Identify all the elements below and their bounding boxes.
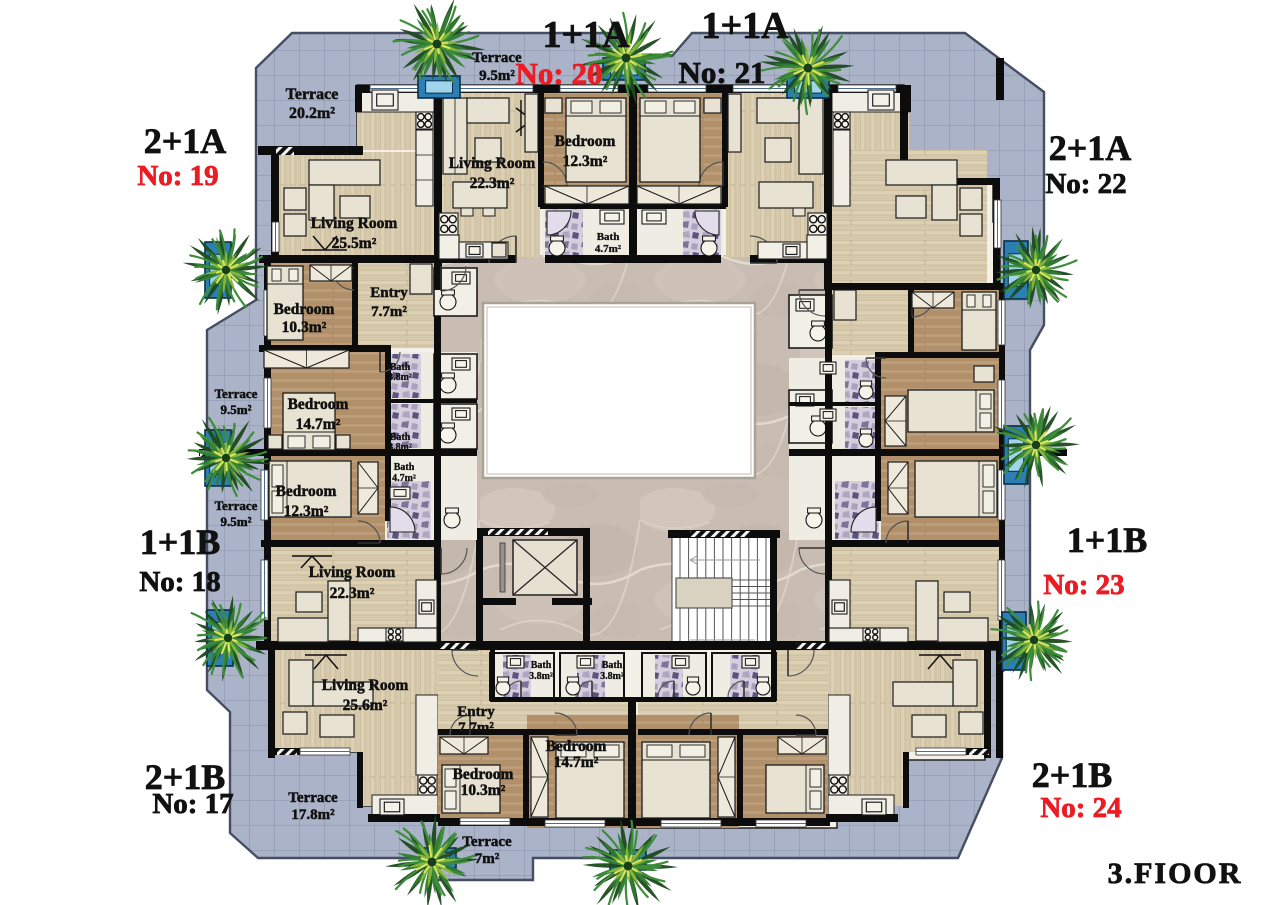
svg-text:12.3m²: 12.3m² [284, 503, 329, 520]
svg-text:Living Room: Living Room [311, 215, 398, 232]
svg-text:Bedroom: Bedroom [276, 483, 337, 500]
svg-text:22.3m²: 22.3m² [330, 585, 375, 602]
svg-text:1+1A: 1+1A [701, 5, 789, 47]
svg-text:1+1B: 1+1B [140, 522, 221, 562]
svg-text:Bath: Bath [597, 231, 620, 243]
svg-text:No: 23: No: 23 [1043, 569, 1124, 601]
svg-text:Bedroom: Bedroom [555, 133, 616, 150]
svg-text:3.8m²: 3.8m² [388, 442, 412, 453]
svg-text:3.8m²: 3.8m² [600, 671, 624, 682]
svg-text:Living Room: Living Room [309, 564, 396, 581]
svg-text:No: 18: No: 18 [139, 566, 220, 598]
svg-text:12.3m²: 12.3m² [563, 153, 608, 170]
svg-text:Terrace: Terrace [215, 386, 258, 401]
svg-text:Living Room: Living Room [449, 155, 536, 172]
svg-text:9.5m²: 9.5m² [221, 402, 252, 417]
svg-text:1+1A: 1+1A [542, 14, 630, 56]
svg-text:Bath: Bath [602, 660, 623, 671]
svg-text:No: 21: No: 21 [679, 55, 766, 90]
svg-text:9.5m²: 9.5m² [479, 68, 515, 84]
svg-text:Living Room: Living Room [322, 677, 409, 694]
svg-text:7.7m²: 7.7m² [371, 304, 407, 320]
svg-text:Bedroom: Bedroom [546, 738, 607, 755]
svg-text:No: 22: No: 22 [1045, 168, 1126, 200]
svg-text:Entry: Entry [370, 285, 408, 301]
svg-text:10.3m²: 10.3m² [461, 782, 506, 799]
svg-text:Terrace: Terrace [215, 498, 258, 513]
svg-text:Bedroom: Bedroom [453, 766, 514, 783]
svg-text:No: 19: No: 19 [137, 160, 218, 192]
svg-text:7m²: 7m² [475, 851, 500, 867]
svg-text:1+1B: 1+1B [1067, 520, 1148, 560]
svg-text:22.3m²: 22.3m² [470, 175, 515, 192]
svg-text:4.7m²: 4.7m² [392, 473, 416, 484]
svg-text:3.8m²: 3.8m² [388, 372, 412, 383]
svg-text:7.7m²: 7.7m² [458, 720, 494, 736]
svg-text:25.5m²: 25.5m² [332, 235, 377, 252]
svg-text:2+1A: 2+1A [1049, 128, 1132, 168]
svg-text:Terrace: Terrace [286, 86, 339, 103]
svg-text:17.8m²: 17.8m² [291, 807, 335, 823]
svg-text:Terrace: Terrace [472, 50, 522, 66]
svg-text:14.7m²: 14.7m² [554, 754, 599, 771]
svg-text:Bedroom: Bedroom [288, 396, 349, 413]
svg-text:Terrace: Terrace [288, 790, 338, 806]
svg-text:No: 20: No: 20 [516, 56, 603, 91]
svg-text:20.2m²: 20.2m² [289, 105, 335, 122]
svg-text:Bath: Bath [394, 462, 415, 473]
svg-text:2+1A: 2+1A [144, 121, 227, 161]
svg-text:4.7m²: 4.7m² [595, 243, 622, 255]
svg-text:Entry: Entry [457, 704, 495, 720]
svg-text:14.7m²: 14.7m² [296, 416, 341, 433]
svg-text:10.3m²: 10.3m² [282, 319, 327, 336]
svg-text:Bath: Bath [531, 660, 552, 671]
svg-text:No: 24: No: 24 [1040, 792, 1121, 824]
svg-text:9.5m²: 9.5m² [221, 514, 252, 529]
svg-text:No: 17: No: 17 [152, 788, 233, 820]
svg-text:2+1B: 2+1B [1032, 755, 1113, 795]
svg-text:Bedroom: Bedroom [274, 301, 335, 318]
svg-text:3.FIOOR: 3.FIOOR [1108, 857, 1243, 890]
svg-text:3.8m²: 3.8m² [529, 671, 553, 682]
svg-text:Terrace: Terrace [462, 834, 512, 850]
svg-text:25.6m²: 25.6m² [343, 697, 388, 714]
